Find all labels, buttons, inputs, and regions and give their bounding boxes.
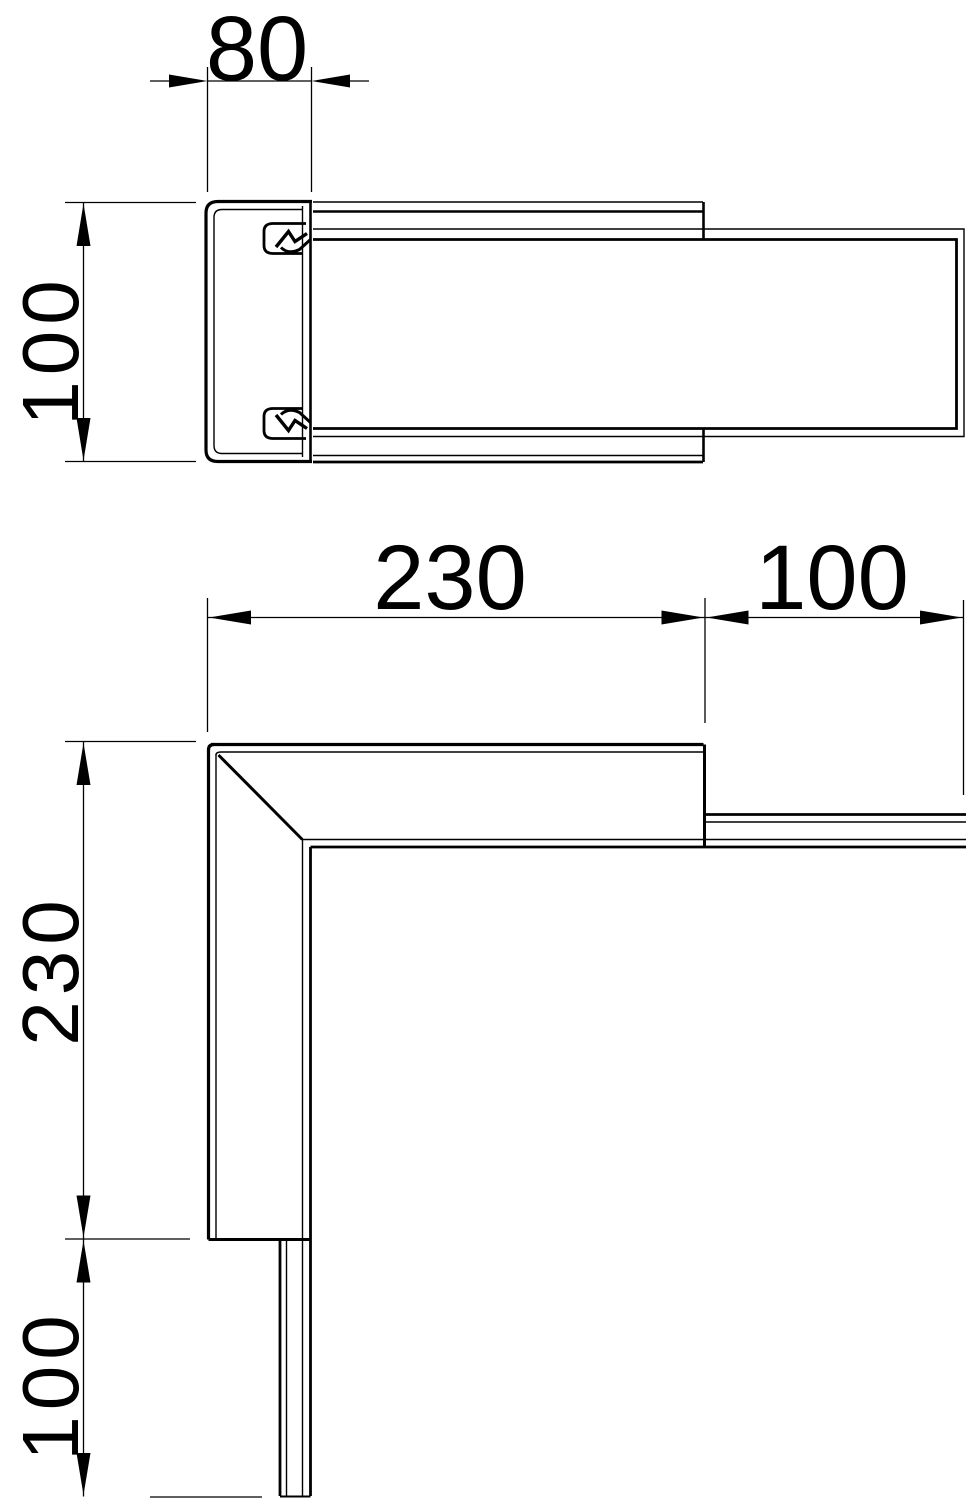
- duct-plan-outline: [313, 202, 964, 462]
- arrowhead: [312, 75, 351, 88]
- arrowhead: [77, 743, 91, 785]
- top-view: 80 100: [6, 0, 964, 462]
- cover-lip-outline: [313, 229, 964, 437]
- dim-section-width: 80: [150, 0, 369, 192]
- cover-clip-top: [264, 224, 311, 254]
- dim-label-vertical-stub: 100: [6, 1309, 95, 1460]
- dim-section-height: 100: [6, 203, 196, 462]
- dim-label-section-height: 100: [6, 274, 95, 425]
- arrowhead: [77, 1241, 91, 1283]
- arrowhead: [209, 611, 251, 625]
- dimension-drawing-svg: 80 100: [0, 0, 967, 1500]
- arrowhead: [707, 611, 749, 625]
- arrowhead: [920, 611, 962, 625]
- section-inner-wall: [214, 210, 303, 454]
- front-view: 230 100 230 100: [6, 527, 966, 1497]
- trunking-cross-section: [206, 202, 312, 462]
- corner-body-outline: [209, 745, 967, 1497]
- technical-drawing-canvas: 80 100: [0, 0, 967, 1500]
- arrowhead: [662, 611, 704, 625]
- dim-vertical-stub: 100: [6, 1239, 262, 1497]
- dim-label-horizontal-arm: 230: [373, 527, 527, 629]
- dim-horizontal-stub: 100: [705, 527, 964, 795]
- cover-outline: [313, 240, 957, 429]
- arrowhead: [169, 75, 208, 88]
- dim-vertical-arm: 230: [6, 742, 196, 1240]
- dim-label-horizontal-stub: 100: [755, 527, 909, 629]
- dim-label-section-width: 80: [206, 0, 308, 100]
- dim-horizontal-arm: 230: [208, 527, 706, 732]
- miter-line: [219, 755, 303, 840]
- corner-arc-inner: [216, 752, 221, 755]
- dim-label-vertical-arm: 230: [6, 894, 95, 1045]
- cover-clip-bottom: [264, 409, 311, 439]
- arrowhead: [77, 1196, 91, 1238]
- arrowhead: [77, 204, 91, 247]
